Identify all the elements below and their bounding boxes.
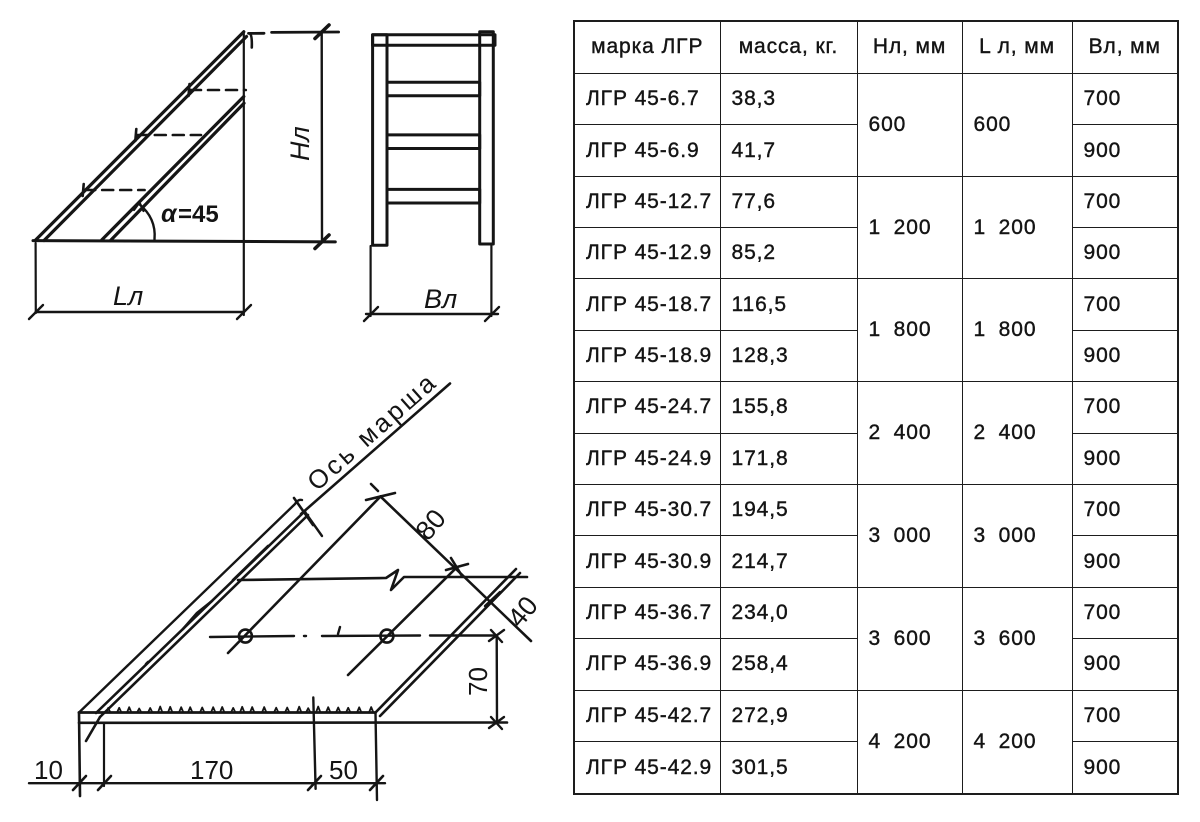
svg-text:80: 80	[410, 504, 452, 546]
svg-text:40: 40	[502, 591, 544, 633]
svg-text:Вл: Вл	[424, 284, 457, 314]
svg-text:α: α	[161, 200, 178, 228]
svg-text:Lл: Lл	[113, 281, 143, 311]
svg-text:Нл: Нл	[285, 126, 315, 161]
svg-text:=45: =45	[178, 201, 219, 228]
svg-text:Ось марша: Ось марша	[301, 366, 443, 497]
svg-text:70: 70	[463, 667, 493, 696]
svg-text:170: 170	[190, 755, 233, 785]
svg-text:10: 10	[34, 755, 63, 785]
svg-text:50: 50	[329, 755, 358, 785]
